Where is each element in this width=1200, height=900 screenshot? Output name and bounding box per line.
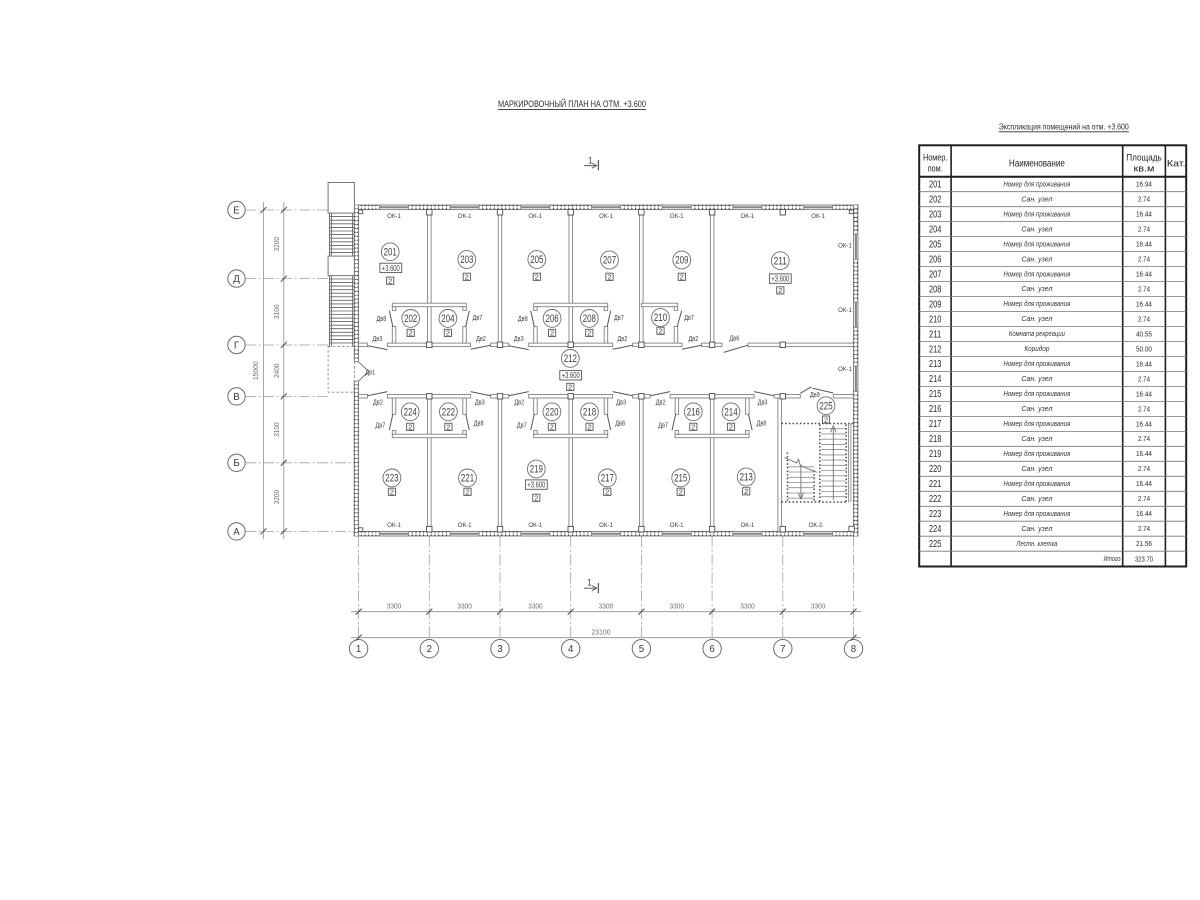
svg-text:216: 216 bbox=[687, 406, 700, 418]
svg-text:пом.: пом. bbox=[928, 164, 943, 175]
svg-text:Сан. узел: Сан. узел bbox=[1021, 256, 1052, 263]
svg-text:Дв2: Дв2 bbox=[656, 398, 666, 407]
svg-text:Дв8: Дв8 bbox=[474, 419, 484, 428]
svg-text:Наименование: Наименование bbox=[1009, 159, 1065, 170]
svg-text:214: 214 bbox=[929, 374, 942, 385]
svg-text:323.70: 323.70 bbox=[1135, 557, 1153, 564]
svg-text:Номер для проживания: Номер для проживания bbox=[1003, 270, 1070, 278]
svg-text:208: 208 bbox=[929, 284, 942, 295]
svg-text:211: 211 bbox=[774, 255, 787, 267]
svg-text:2: 2 bbox=[535, 273, 539, 282]
svg-text:210: 210 bbox=[929, 314, 942, 325]
svg-text:Номер для проживания: Номер для проживания bbox=[1003, 240, 1070, 248]
svg-text:2.74: 2.74 bbox=[1138, 406, 1150, 413]
svg-text:ОК-1: ОК-1 bbox=[387, 213, 401, 220]
svg-text:+3.600: +3.600 bbox=[527, 480, 545, 490]
svg-text:2: 2 bbox=[680, 273, 684, 282]
svg-text:2: 2 bbox=[587, 423, 591, 432]
svg-text:Сан. узел: Сан. узел bbox=[1021, 286, 1052, 293]
svg-text:2.74: 2.74 bbox=[1138, 436, 1150, 443]
svg-text:3300: 3300 bbox=[811, 602, 826, 611]
svg-text:3200: 3200 bbox=[272, 490, 281, 505]
svg-text:4: 4 bbox=[568, 644, 574, 655]
svg-text:Сан. узел: Сан. узел bbox=[1021, 226, 1052, 233]
svg-text:Дв8: Дв8 bbox=[757, 419, 767, 428]
svg-text:3300: 3300 bbox=[387, 602, 402, 611]
svg-text:Номер для проживания: Номер для проживания bbox=[1003, 450, 1070, 458]
svg-text:Дв8: Дв8 bbox=[518, 314, 528, 323]
svg-text:202: 202 bbox=[929, 195, 942, 206]
svg-text:217: 217 bbox=[929, 419, 942, 430]
svg-text:15000: 15000 bbox=[251, 361, 260, 380]
svg-text:2: 2 bbox=[446, 423, 450, 432]
svg-text:ОК-1: ОК-1 bbox=[811, 213, 825, 220]
svg-text:16.44: 16.44 bbox=[1136, 242, 1152, 249]
svg-text:Дв2: Дв2 bbox=[373, 398, 383, 407]
svg-text:Кат.: Кат. bbox=[1167, 159, 1186, 170]
svg-text:23100: 23100 bbox=[592, 627, 611, 636]
svg-text:2: 2 bbox=[605, 488, 609, 497]
svg-text:Г: Г bbox=[234, 340, 240, 351]
svg-text:206: 206 bbox=[546, 313, 559, 325]
svg-text:Дв7: Дв7 bbox=[614, 313, 624, 322]
svg-text:Дв8: Дв8 bbox=[377, 314, 387, 323]
svg-text:Дв2: Дв2 bbox=[514, 398, 524, 407]
svg-text:218: 218 bbox=[583, 406, 596, 418]
svg-text:Б: Б bbox=[233, 458, 239, 469]
svg-text:Итого: Итого bbox=[1104, 556, 1121, 563]
svg-text:Номер для проживания: Номер для проживания bbox=[1003, 180, 1070, 188]
svg-text:21.56: 21.56 bbox=[1136, 541, 1152, 548]
svg-text:3: 3 bbox=[497, 644, 502, 655]
svg-text:220: 220 bbox=[545, 406, 558, 418]
svg-text:Дв7: Дв7 bbox=[473, 313, 483, 322]
svg-text:2: 2 bbox=[691, 423, 695, 432]
svg-text:2: 2 bbox=[465, 273, 469, 282]
svg-text:208: 208 bbox=[583, 313, 596, 325]
svg-text:223: 223 bbox=[929, 509, 942, 520]
svg-text:Дв7: Дв7 bbox=[684, 313, 694, 322]
svg-text:2.74: 2.74 bbox=[1138, 316, 1150, 323]
svg-text:ОК-1: ОК-1 bbox=[670, 522, 684, 529]
svg-text:ОК-2: ОК-2 bbox=[809, 522, 823, 529]
svg-text:Номер для проживания: Номер для проживания bbox=[1003, 390, 1070, 398]
svg-text:224: 224 bbox=[929, 524, 942, 535]
svg-text:ОК-1: ОК-1 bbox=[599, 522, 613, 529]
svg-text:219: 219 bbox=[530, 464, 543, 476]
svg-text:Дв1: Дв1 bbox=[365, 368, 375, 377]
svg-text:Дв3: Дв3 bbox=[514, 334, 524, 343]
svg-text:Дв9: Дв9 bbox=[810, 390, 820, 399]
svg-text:221: 221 bbox=[461, 473, 474, 485]
svg-text:2: 2 bbox=[744, 487, 748, 496]
svg-text:Сан. узел: Сан. узел bbox=[1021, 496, 1052, 503]
svg-text:Номер для проживания: Номер для проживания bbox=[1003, 210, 1070, 218]
svg-text:3300: 3300 bbox=[740, 602, 755, 611]
svg-text:Сан. узел: Сан. узел bbox=[1021, 196, 1052, 203]
svg-text:2: 2 bbox=[550, 423, 554, 432]
svg-text:+3.600: +3.600 bbox=[382, 263, 400, 273]
svg-text:203: 203 bbox=[460, 254, 473, 266]
svg-text:Дв7: Дв7 bbox=[658, 420, 668, 429]
svg-text:16.44: 16.44 bbox=[1136, 301, 1152, 308]
svg-text:16.44: 16.44 bbox=[1136, 212, 1152, 219]
svg-text:2: 2 bbox=[778, 286, 782, 295]
svg-text:Дв8: Дв8 bbox=[615, 419, 625, 428]
svg-text:204: 204 bbox=[929, 224, 942, 235]
svg-text:ОК-1: ОК-1 bbox=[458, 522, 472, 529]
svg-text:2: 2 bbox=[568, 383, 572, 392]
svg-text:7: 7 bbox=[780, 644, 785, 655]
svg-text:205: 205 bbox=[929, 239, 942, 250]
svg-text:Дв7: Дв7 bbox=[517, 420, 527, 429]
svg-text:224: 224 bbox=[404, 406, 417, 418]
svg-text:ОК-1: ОК-1 bbox=[670, 213, 684, 220]
svg-text:Сан. узел: Сан. узел bbox=[1021, 316, 1052, 323]
svg-text:Дв2: Дв2 bbox=[618, 334, 628, 343]
svg-text:212: 212 bbox=[564, 353, 577, 365]
svg-text:2: 2 bbox=[607, 273, 611, 282]
svg-text:2: 2 bbox=[729, 423, 733, 432]
svg-text:16.44: 16.44 bbox=[1136, 272, 1152, 279]
svg-text:Дв2: Дв2 bbox=[689, 334, 699, 343]
svg-text:202: 202 bbox=[404, 313, 417, 325]
svg-text:223: 223 bbox=[385, 473, 398, 485]
svg-text:Номер для проживания: Номер для проживания bbox=[1003, 510, 1070, 518]
svg-text:2: 2 bbox=[587, 329, 591, 338]
svg-text:213: 213 bbox=[929, 359, 942, 370]
svg-text:Коридор: Коридор bbox=[1024, 345, 1049, 353]
svg-text:3300: 3300 bbox=[670, 602, 685, 611]
svg-text:2: 2 bbox=[408, 423, 412, 432]
svg-text:222: 222 bbox=[442, 406, 455, 418]
svg-text:209: 209 bbox=[929, 299, 942, 310]
svg-text:кв.м: кв.м bbox=[1134, 164, 1155, 175]
svg-text:Дв2: Дв2 bbox=[476, 334, 486, 343]
svg-text:Дв3: Дв3 bbox=[475, 398, 485, 407]
svg-text:50.00: 50.00 bbox=[1136, 346, 1152, 353]
svg-text:16.44: 16.44 bbox=[1136, 481, 1152, 488]
svg-text:214: 214 bbox=[724, 406, 737, 418]
svg-text:Д: Д bbox=[233, 274, 240, 285]
svg-text:Сан. узел: Сан. узел bbox=[1021, 526, 1052, 533]
svg-text:ОК-1: ОК-1 bbox=[528, 522, 542, 529]
svg-text:2: 2 bbox=[465, 488, 469, 497]
svg-text:Экспликация помещений на отм.: Экспликация помещений на отм. +3.600 bbox=[999, 122, 1129, 131]
svg-text:2: 2 bbox=[550, 329, 554, 338]
svg-text:207: 207 bbox=[929, 269, 942, 280]
svg-text:Номер для проживания: Номер для проживания bbox=[1003, 420, 1070, 428]
svg-text:209: 209 bbox=[675, 255, 688, 267]
svg-text:205: 205 bbox=[530, 254, 543, 266]
svg-text:16.44: 16.44 bbox=[1136, 421, 1152, 428]
svg-text:ОК-1: ОК-1 bbox=[838, 242, 852, 249]
svg-text:ОК-1: ОК-1 bbox=[458, 213, 472, 220]
svg-text:204: 204 bbox=[441, 313, 454, 325]
svg-text:ОК-1: ОК-1 bbox=[387, 522, 401, 529]
svg-text:3100: 3100 bbox=[272, 422, 281, 437]
svg-text:206: 206 bbox=[929, 254, 942, 265]
svg-text:5: 5 bbox=[639, 644, 644, 655]
svg-text:2.74: 2.74 bbox=[1138, 286, 1150, 293]
svg-text:1: 1 bbox=[588, 156, 593, 166]
svg-text:215: 215 bbox=[929, 389, 942, 400]
svg-text:+3.600: +3.600 bbox=[562, 370, 580, 380]
svg-text:А: А bbox=[233, 527, 240, 538]
svg-text:8: 8 bbox=[851, 644, 856, 655]
svg-text:2400: 2400 bbox=[272, 363, 281, 378]
svg-text:220: 220 bbox=[929, 464, 942, 475]
svg-text:ОК-1: ОК-1 bbox=[741, 522, 755, 529]
svg-text:Сан. узел: Сан. узел bbox=[1021, 436, 1052, 443]
svg-text:219: 219 bbox=[929, 449, 942, 460]
svg-text:211: 211 bbox=[929, 329, 942, 340]
svg-text:218: 218 bbox=[929, 434, 942, 445]
svg-text:В: В bbox=[233, 392, 239, 403]
svg-text:221: 221 bbox=[929, 479, 942, 490]
svg-text:1: 1 bbox=[356, 644, 361, 655]
svg-text:3300: 3300 bbox=[457, 602, 472, 611]
svg-text:2: 2 bbox=[679, 488, 683, 497]
svg-text:6: 6 bbox=[709, 644, 714, 655]
svg-text:2.74: 2.74 bbox=[1138, 526, 1150, 533]
svg-text:2: 2 bbox=[390, 488, 394, 497]
svg-text:201: 201 bbox=[384, 246, 397, 258]
svg-text:215: 215 bbox=[674, 473, 687, 485]
svg-text:МАРКИРОВОЧНЫЙ ПЛАН НА ОТМ. +3.: МАРКИРОВОЧНЫЙ ПЛАН НА ОТМ. +3.600 bbox=[498, 98, 646, 109]
svg-text:222: 222 bbox=[929, 494, 942, 505]
svg-text:+3.600: +3.600 bbox=[771, 274, 789, 284]
svg-text:Сан. узел: Сан. узел bbox=[1021, 466, 1052, 473]
svg-text:2.74: 2.74 bbox=[1138, 197, 1150, 204]
svg-text:Дв7: Дв7 bbox=[376, 420, 386, 429]
svg-text:Номер для проживания: Номер для проживания bbox=[1003, 480, 1070, 488]
svg-text:Дв3: Дв3 bbox=[758, 398, 768, 407]
svg-text:217: 217 bbox=[601, 473, 614, 485]
svg-text:Сан. узел: Сан. узел bbox=[1021, 406, 1052, 413]
svg-text:3300: 3300 bbox=[599, 602, 614, 611]
svg-text:2: 2 bbox=[824, 415, 828, 424]
svg-text:2: 2 bbox=[409, 329, 413, 338]
svg-text:ОК-1: ОК-1 bbox=[838, 307, 852, 314]
svg-text:210: 210 bbox=[654, 312, 667, 324]
svg-text:Сан. узел: Сан. узел bbox=[1021, 376, 1052, 383]
svg-text:Дв3: Дв3 bbox=[373, 334, 383, 343]
svg-text:2.74: 2.74 bbox=[1138, 496, 1150, 503]
svg-text:3300: 3300 bbox=[528, 602, 543, 611]
svg-text:ОК-1: ОК-1 bbox=[838, 366, 852, 373]
svg-text:16.44: 16.44 bbox=[1136, 391, 1152, 398]
svg-text:16.44: 16.44 bbox=[1136, 361, 1152, 368]
svg-text:ОК-1: ОК-1 bbox=[741, 213, 755, 220]
svg-text:3100: 3100 bbox=[272, 305, 281, 320]
svg-text:216: 216 bbox=[929, 404, 942, 415]
svg-text:212: 212 bbox=[929, 344, 942, 355]
svg-text:207: 207 bbox=[603, 255, 616, 267]
svg-text:203: 203 bbox=[929, 210, 942, 221]
svg-text:3200: 3200 bbox=[272, 237, 281, 252]
svg-text:ОК-1: ОК-1 bbox=[528, 213, 542, 220]
svg-text:Комната рекреации: Комната рекреации bbox=[1009, 331, 1065, 338]
svg-text:Номер для проживания: Номер для проживания bbox=[1003, 300, 1070, 308]
svg-text:Номер для проживания: Номер для проживания bbox=[1003, 360, 1070, 368]
svg-text:1: 1 bbox=[587, 578, 592, 588]
svg-text:Номер.: Номер. bbox=[923, 152, 948, 163]
svg-text:2: 2 bbox=[534, 494, 538, 503]
svg-text:2.74: 2.74 bbox=[1138, 466, 1150, 473]
svg-text:Дв6: Дв6 bbox=[730, 334, 740, 343]
svg-text:225: 225 bbox=[929, 539, 942, 550]
svg-text:ОК-1: ОК-1 bbox=[599, 213, 613, 220]
svg-text:16.94: 16.94 bbox=[1136, 182, 1152, 189]
svg-text:213: 213 bbox=[740, 472, 753, 484]
svg-text:225: 225 bbox=[819, 400, 832, 412]
svg-text:2: 2 bbox=[658, 327, 662, 336]
svg-text:201: 201 bbox=[929, 180, 942, 191]
svg-text:2: 2 bbox=[388, 276, 392, 285]
svg-text:2.74: 2.74 bbox=[1138, 376, 1150, 383]
svg-text:Дв3: Дв3 bbox=[616, 398, 626, 407]
svg-text:2: 2 bbox=[427, 644, 432, 655]
svg-text:Лестн. клетка: Лестн. клетка bbox=[1016, 541, 1058, 548]
svg-text:2: 2 bbox=[446, 329, 450, 338]
svg-text:2.74: 2.74 bbox=[1138, 227, 1150, 234]
svg-text:2.74: 2.74 bbox=[1138, 257, 1150, 264]
svg-text:16.44: 16.44 bbox=[1136, 511, 1152, 518]
svg-text:40.55: 40.55 bbox=[1136, 331, 1152, 338]
svg-text:16.44: 16.44 bbox=[1136, 451, 1152, 458]
svg-text:Е: Е bbox=[233, 205, 240, 216]
svg-text:Площадь: Площадь bbox=[1126, 152, 1162, 163]
